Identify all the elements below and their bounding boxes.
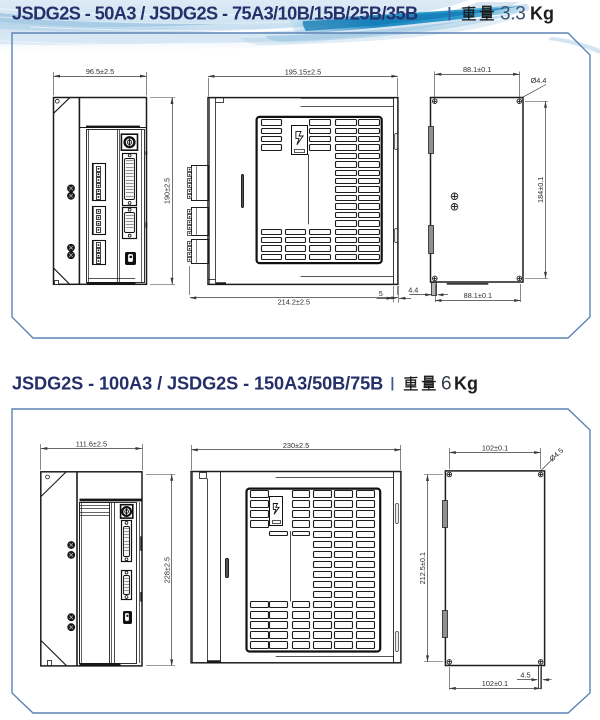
- svg-text:Kg: Kg: [530, 4, 554, 24]
- svg-text:184±0.1: 184±0.1: [536, 177, 545, 203]
- svg-text:Ø4.4: Ø4.4: [531, 76, 547, 85]
- svg-text:Kg: Kg: [454, 374, 478, 394]
- svg-text:5: 5: [379, 289, 383, 298]
- svg-text:230±2.5: 230±2.5: [283, 441, 309, 450]
- svg-text:JSDG2S - 50A3 / JSDG2S - 75A3/: JSDG2S - 50A3 / JSDG2S - 75A3/10B/15B/25…: [12, 4, 418, 24]
- svg-text:88.1±0.1: 88.1±0.1: [464, 291, 492, 300]
- svg-text:4.5: 4.5: [520, 670, 530, 679]
- svg-text:190±2.5: 190±2.5: [163, 178, 172, 204]
- svg-text:4.4: 4.4: [408, 286, 418, 295]
- svg-text:111.6±2.5: 111.6±2.5: [76, 440, 107, 449]
- svg-text:212.5±0.1: 212.5±0.1: [418, 552, 427, 584]
- svg-text:96.5±2.5: 96.5±2.5: [86, 67, 114, 76]
- svg-text:214.2±2.5: 214.2±2.5: [278, 298, 310, 307]
- svg-text:228±2.5: 228±2.5: [162, 557, 171, 583]
- svg-text:102±0.1: 102±0.1: [482, 444, 508, 453]
- svg-text:3.3: 3.3: [500, 4, 526, 25]
- svg-text:195.15±2.5: 195.15±2.5: [285, 67, 321, 76]
- svg-text:Ø4.5: Ø4.5: [547, 446, 565, 463]
- svg-text:6: 6: [441, 374, 451, 395]
- svg-text:88.1±0.1: 88.1±0.1: [463, 65, 491, 74]
- svg-text:102±0.1: 102±0.1: [482, 679, 508, 688]
- svg-text:JSDG2S - 100A3 / JSDG2S - 150A: JSDG2S - 100A3 / JSDG2S - 150A3/50B/75B: [12, 374, 383, 394]
